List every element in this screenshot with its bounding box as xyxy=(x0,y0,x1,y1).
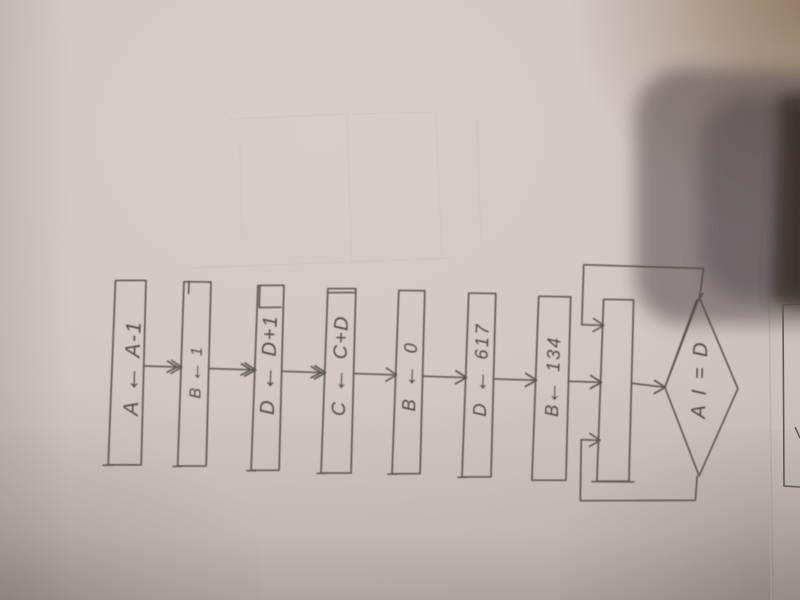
svg-text:A I = D: A I = D xyxy=(688,340,712,420)
